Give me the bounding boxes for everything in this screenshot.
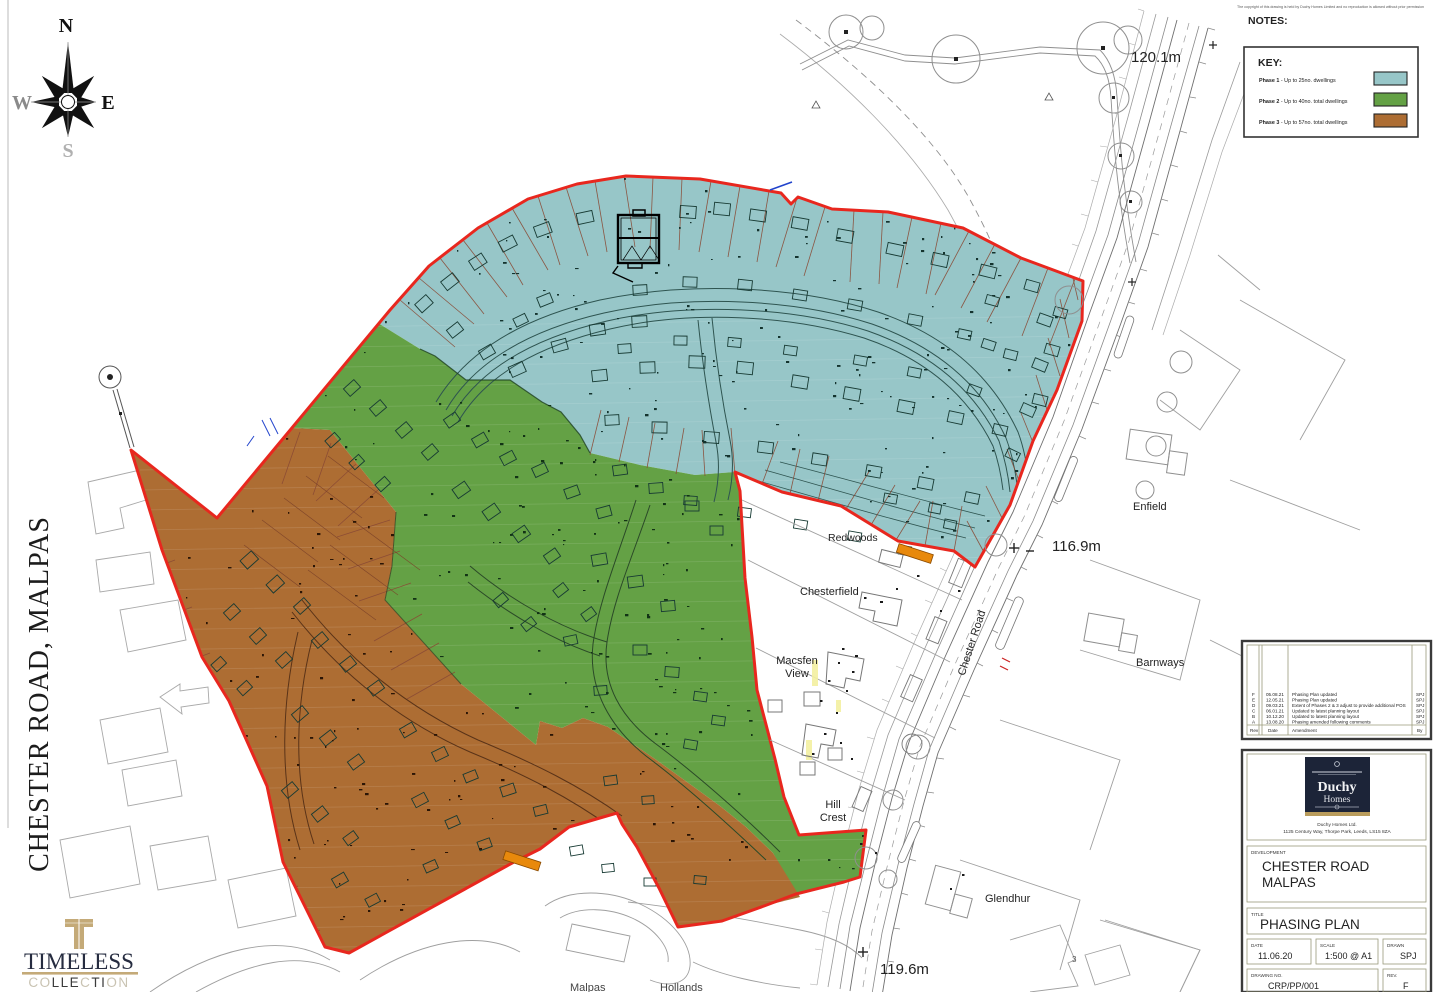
svg-text:S: S <box>62 140 73 162</box>
svg-text:Redwoods: Redwoods <box>828 532 878 544</box>
svg-text:13.08.20: 13.08.20 <box>1266 720 1284 725</box>
svg-text:Amendment: Amendment <box>1292 728 1317 733</box>
svg-text:Extent of Phases 2 & 3 adjust: Extent of Phases 2 & 3 adjust to provide… <box>1292 703 1406 708</box>
svg-text:COLLECTION: COLLECTION <box>28 975 129 990</box>
svg-text:12.05.21: 12.05.21 <box>1266 698 1284 703</box>
svg-text:E: E <box>101 92 114 114</box>
svg-text:SPJ: SPJ <box>1416 709 1424 714</box>
svg-text:Malpas: Malpas <box>570 982 606 992</box>
svg-text:1125 Century Way, Thorpe Park,: 1125 Century Way, Thorpe Park, Leeds, LS… <box>1283 829 1391 835</box>
svg-text:Chesterfield: Chesterfield <box>800 586 859 598</box>
svg-text:DRAWING NO.: DRAWING NO. <box>1251 973 1282 978</box>
svg-text:09.03.21: 09.03.21 <box>1266 703 1284 708</box>
svg-text:Crest: Crest <box>820 812 846 824</box>
svg-text:Duchy Homes Ltd.: Duchy Homes Ltd. <box>1317 822 1356 828</box>
svg-text:DATE: DATE <box>1251 943 1263 948</box>
svg-text:Phasing Plan updated: Phasing Plan updated <box>1292 698 1337 703</box>
svg-text:Enfield: Enfield <box>1133 501 1167 513</box>
svg-text:120.1m: 120.1m <box>1131 49 1181 66</box>
svg-text:View: View <box>785 668 809 680</box>
svg-text:SPJ: SPJ <box>1416 714 1424 719</box>
svg-text:CHESTER ROAD, MALPAS: CHESTER ROAD, MALPAS <box>24 516 55 872</box>
svg-text:Phasing Plan updated: Phasing Plan updated <box>1292 692 1337 697</box>
svg-text:SCALE: SCALE <box>1320 943 1335 948</box>
svg-text:DEVELOPMENT: DEVELOPMENT <box>1251 850 1286 855</box>
svg-text:E: E <box>1252 698 1255 703</box>
svg-text:W: W <box>12 92 32 114</box>
svg-text:CRP/PP/001: CRP/PP/001 <box>1268 981 1319 991</box>
svg-text:11.06.20: 11.06.20 <box>1258 951 1292 961</box>
svg-text:Homes: Homes <box>1324 795 1351 805</box>
svg-text:SPJ: SPJ <box>1416 720 1424 725</box>
svg-text:Rev: Rev <box>1250 728 1259 733</box>
svg-text:10.12.20: 10.12.20 <box>1266 714 1284 719</box>
svg-text:Phase 1 - Up to 25no. dwelling: Phase 1 - Up to 25no. dwellings <box>1259 78 1336 84</box>
svg-text:F: F <box>1252 692 1255 697</box>
svg-text:Hill: Hill <box>825 799 840 811</box>
svg-text:CHESTER ROAD: CHESTER ROAD <box>1262 859 1370 874</box>
svg-text:Date: Date <box>1268 728 1278 733</box>
svg-text:1:500 @ A1: 1:500 @ A1 <box>1325 951 1372 961</box>
svg-text:3: 3 <box>1072 955 1077 964</box>
svg-text:KEY:: KEY: <box>1258 57 1282 69</box>
svg-text:119.6m: 119.6m <box>880 961 929 978</box>
svg-text:REV.: REV. <box>1387 973 1397 978</box>
svg-text:Duchy: Duchy <box>1318 780 1357 795</box>
svg-text:Phase 3 - Up to 57no. total dw: Phase 3 - Up to 57no. total dwellings <box>1259 120 1348 126</box>
svg-text:PHASING PLAN: PHASING PLAN <box>1260 917 1360 932</box>
svg-text:Updated to latest planning lay: Updated to latest planning layout <box>1292 709 1360 714</box>
svg-text:Macsfen: Macsfen <box>776 655 818 667</box>
svg-text:Phase 2 - Up to 40no. total dw: Phase 2 - Up to 40no. total dwellings <box>1259 99 1348 105</box>
svg-text:Glendhur: Glendhur <box>985 893 1031 905</box>
svg-text:NOTES:: NOTES: <box>1248 15 1288 27</box>
svg-text:F: F <box>1403 981 1409 991</box>
svg-text:06.01.21: 06.01.21 <box>1266 709 1284 714</box>
svg-text:SPJ: SPJ <box>1416 703 1424 708</box>
svg-text:DRAWN: DRAWN <box>1387 943 1404 948</box>
svg-text:Hollands: Hollands <box>660 982 703 992</box>
svg-text:Updated to latest planning lay: Updated to latest planning layout <box>1292 714 1360 719</box>
svg-text:Barnways: Barnways <box>1136 657 1185 669</box>
svg-text:TIMELESS: TIMELESS <box>24 949 134 974</box>
svg-text:N: N <box>59 15 74 37</box>
svg-text:Phasing amended following comm: Phasing amended following comments <box>1292 720 1371 725</box>
svg-text:SPJ: SPJ <box>1400 951 1417 961</box>
svg-text:05.08.21: 05.08.21 <box>1266 692 1284 697</box>
svg-text:MALPAS: MALPAS <box>1262 875 1316 890</box>
svg-text:B: B <box>1252 714 1255 719</box>
svg-text:By: By <box>1417 728 1423 733</box>
svg-text:116.9m: 116.9m <box>1052 538 1101 555</box>
svg-text:The copyright of this drawing: The copyright of this drawing is held by… <box>1237 5 1424 9</box>
svg-text:SPJ: SPJ <box>1416 698 1424 703</box>
svg-text:SPJ: SPJ <box>1416 692 1424 697</box>
